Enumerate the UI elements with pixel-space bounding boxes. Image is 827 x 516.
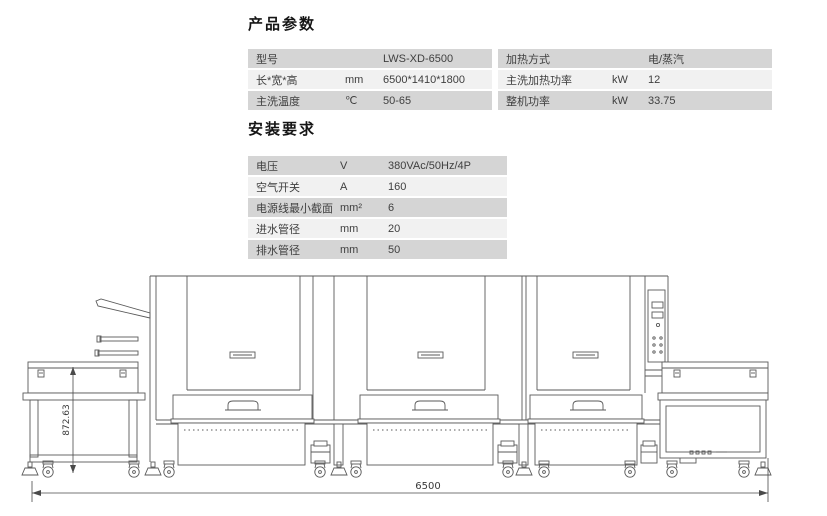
vent-slot: [230, 352, 598, 358]
slanted-shelf: [96, 299, 150, 318]
length-dim-label: 6500: [415, 481, 440, 492]
caster-wheel: [739, 461, 749, 477]
caster-wheel: [43, 461, 53, 477]
leveling-foot: [22, 462, 38, 475]
shelf-bar: [98, 351, 138, 355]
leveling-foot: [755, 462, 771, 475]
caster-wheel: [667, 461, 677, 477]
wash-module-drawers: [171, 395, 644, 465]
height-dim-label: 872.63: [62, 404, 72, 436]
technical-drawing: 872.63 6500: [0, 0, 827, 516]
caster-wheel: [351, 461, 361, 477]
outfeed-table: [23, 299, 150, 462]
caster-wheel: [129, 461, 139, 477]
shelf-bar: [100, 337, 138, 341]
leveling-foot: [145, 462, 161, 475]
infeed-table: [658, 362, 768, 458]
caster-wheel: [164, 461, 174, 477]
